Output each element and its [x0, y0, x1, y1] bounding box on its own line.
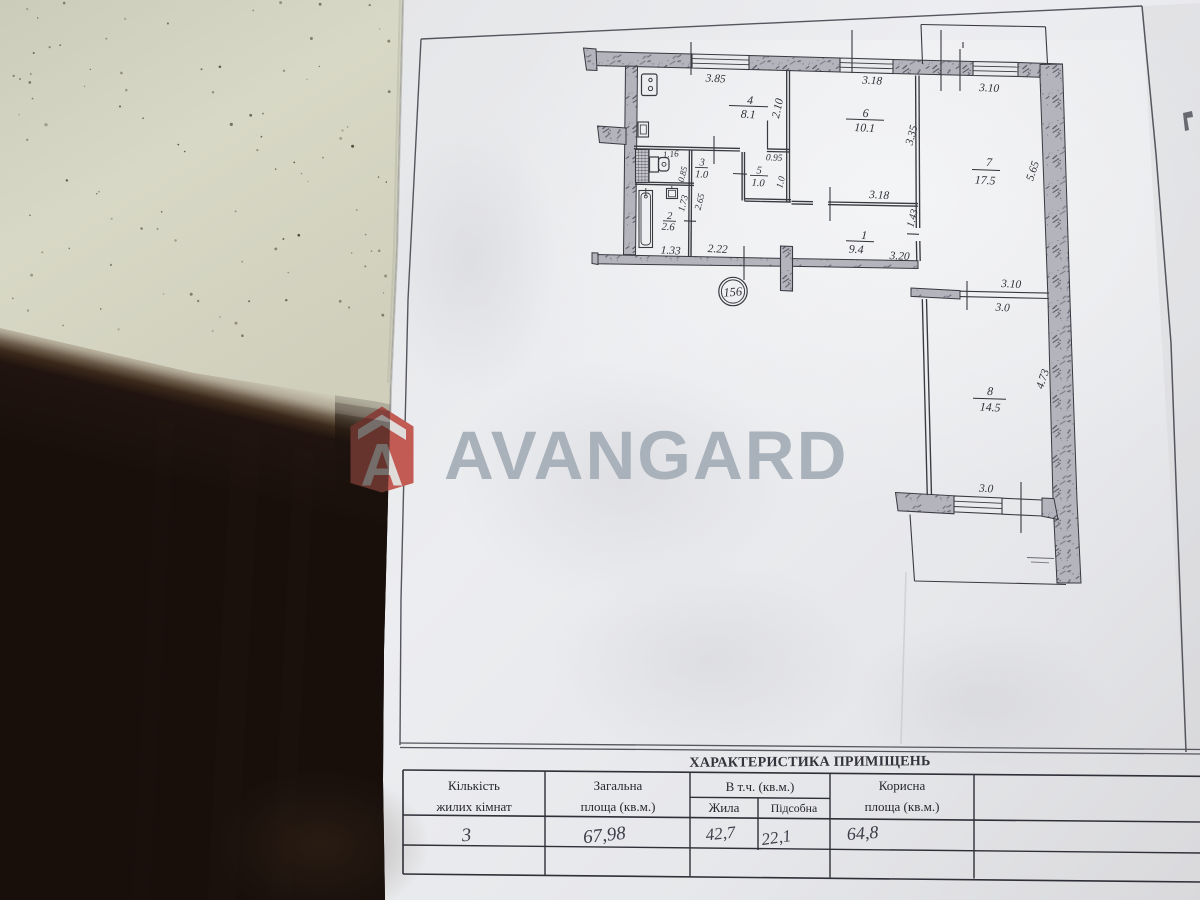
svg-text:1.0: 1.0	[751, 178, 765, 190]
svg-text:8.1: 8.1	[740, 107, 755, 122]
svg-text:3.20: 3.20	[888, 250, 910, 263]
svg-text:3.85: 3.85	[704, 72, 726, 85]
svg-text:1: 1	[861, 228, 868, 242]
svg-text:3.18: 3.18	[868, 189, 890, 202]
svg-text:156: 156	[723, 284, 743, 299]
svg-text:3.0: 3.0	[978, 483, 994, 496]
svg-text:3: 3	[460, 825, 472, 847]
svg-text:ХАРАКТЕРИСТИКА ПРИМІЩЕНЬ: ХАРАКТЕРИСТИКА ПРИМІЩЕНЬ	[689, 753, 930, 771]
svg-text:В т.ч. (кв.м.): В т.ч. (кв.м.)	[726, 779, 795, 794]
svg-text:Кількість: Кількість	[448, 778, 500, 793]
svg-text:Жила: Жила	[709, 800, 740, 815]
svg-text:42,7: 42,7	[705, 822, 738, 844]
svg-text:0.95: 0.95	[766, 153, 783, 164]
svg-text:14.5: 14.5	[980, 399, 1001, 414]
svg-text:1.0: 1.0	[695, 169, 709, 181]
svg-text:AVANGARD: AVANGARD	[444, 417, 848, 494]
svg-text:3.10: 3.10	[978, 82, 1000, 95]
svg-text:4: 4	[747, 93, 754, 107]
svg-text:жилих кімнат: жилих кімнат	[435, 799, 512, 814]
svg-text:3: 3	[698, 157, 705, 168]
svg-text:площа (кв.м.): площа (кв.м.)	[581, 799, 656, 814]
svg-text:3.18: 3.18	[861, 74, 883, 87]
svg-text:1.33: 1.33	[660, 244, 681, 257]
svg-text:67,98: 67,98	[582, 823, 627, 848]
svg-text:9.4: 9.4	[848, 242, 864, 257]
svg-text:1.16: 1.16	[662, 148, 679, 159]
svg-text:Загальна: Загальна	[594, 778, 643, 793]
svg-text:3.0: 3.0	[994, 302, 1010, 315]
svg-text:10.1: 10.1	[854, 120, 875, 135]
svg-text:2.22: 2.22	[707, 243, 728, 256]
svg-text:3.10: 3.10	[1000, 278, 1022, 291]
svg-text:6: 6	[862, 106, 869, 120]
svg-text:2.6: 2.6	[661, 222, 675, 234]
svg-text:Підсобна: Підсобна	[771, 801, 818, 815]
svg-text:площа (кв.м.): площа (кв.м.)	[865, 799, 940, 814]
svg-text:5: 5	[756, 165, 762, 176]
svg-text:64,8: 64,8	[846, 822, 879, 844]
svg-text:Корисна: Корисна	[879, 778, 926, 793]
svg-text:17.5: 17.5	[975, 172, 996, 187]
svg-text:8: 8	[987, 384, 994, 398]
